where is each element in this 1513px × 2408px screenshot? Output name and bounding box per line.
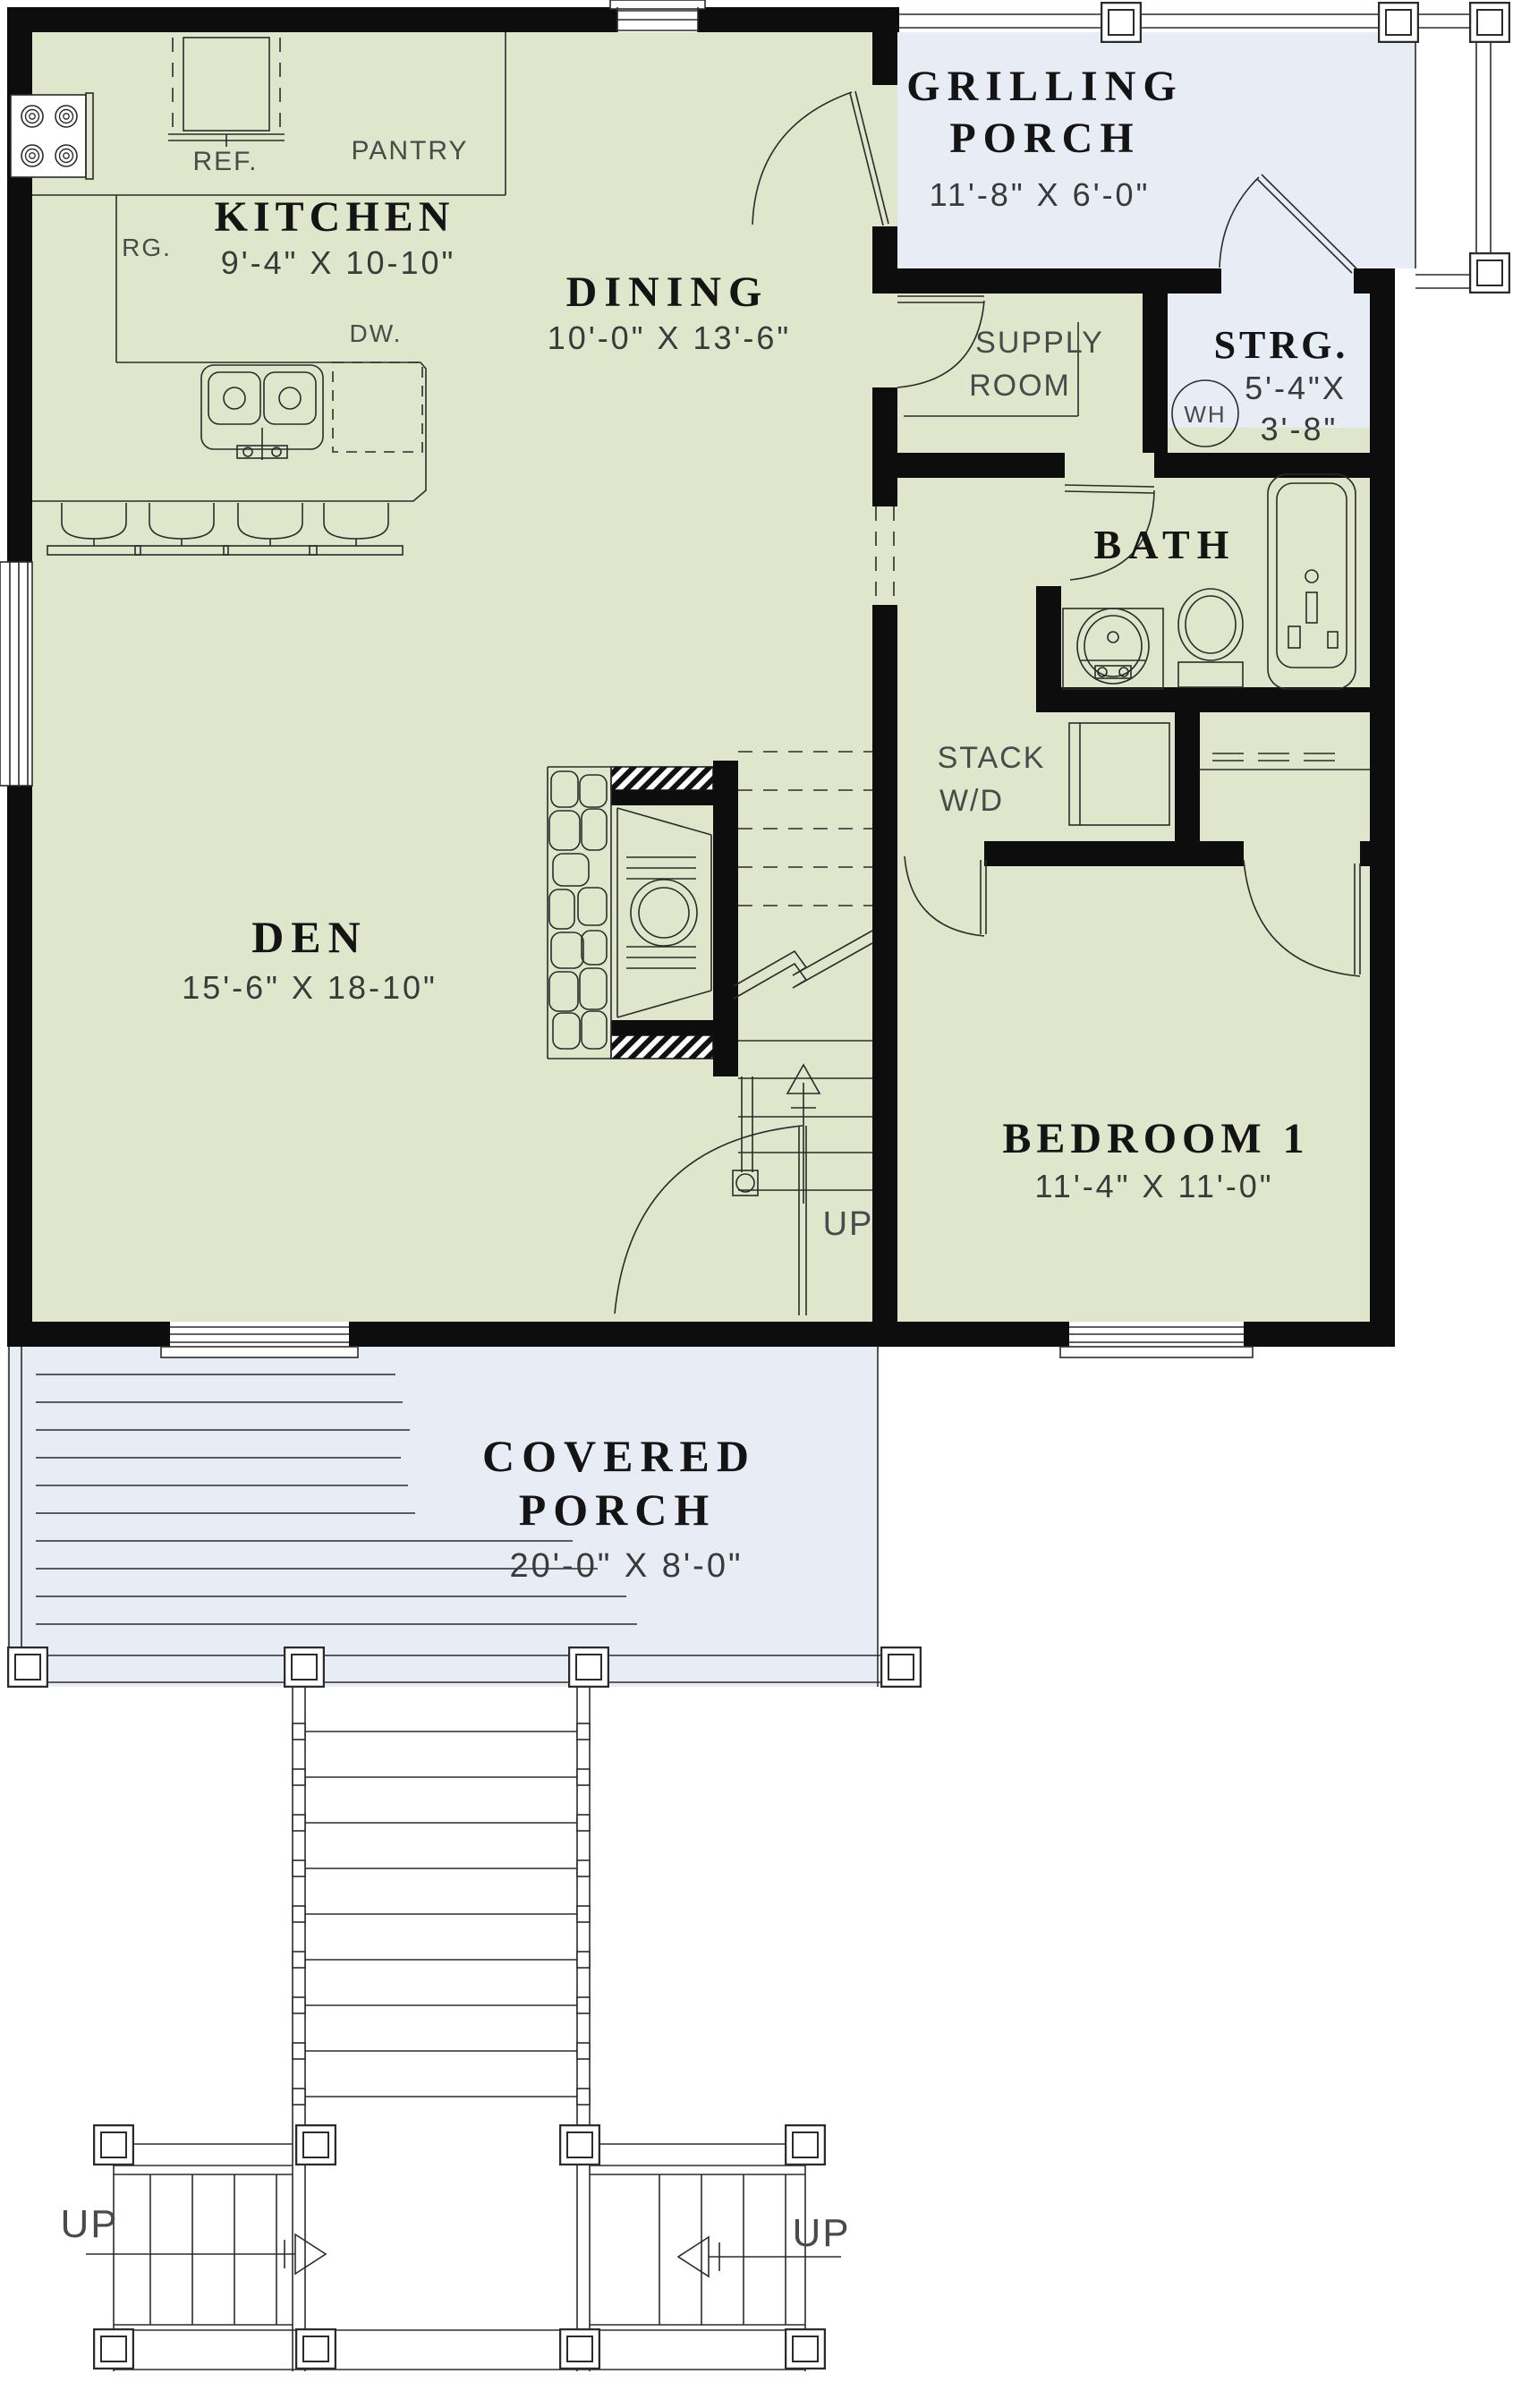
storage-dims-1: 5'-4"X bbox=[1245, 370, 1347, 406]
lower-landing bbox=[86, 2125, 841, 2371]
den-dims: 15'-6" X 18-10" bbox=[182, 969, 438, 1006]
laundry-label-2: W/D bbox=[939, 784, 1004, 818]
storage-label: STRG. bbox=[1214, 323, 1349, 367]
dishwasher-label: DW. bbox=[350, 319, 403, 347]
supply-room-label-2: ROOM bbox=[969, 369, 1071, 403]
grilling-porch-dims: 11'-8" X 6'-0" bbox=[930, 176, 1151, 213]
deck-up-label-left: UP bbox=[60, 2202, 118, 2246]
deck-post bbox=[1379, 3, 1418, 42]
floor-plan: GRILLING PORCH 11'-8" X 6'-0" STRG. 5'-4… bbox=[0, 0, 1513, 2408]
landing-post bbox=[786, 2125, 825, 2165]
deck-post bbox=[1470, 3, 1509, 42]
door-gap bbox=[1221, 268, 1354, 294]
deck-post bbox=[1101, 3, 1141, 42]
pantry-label: PANTRY bbox=[352, 136, 469, 166]
den-label: DEN bbox=[251, 912, 368, 962]
door-gap bbox=[872, 85, 897, 226]
window-den-front bbox=[161, 1322, 358, 1357]
door-gap bbox=[1244, 841, 1360, 866]
porch-post bbox=[8, 1647, 47, 1687]
covered-porch-label-1: COVERED bbox=[482, 1431, 756, 1481]
masonry-hatch bbox=[611, 767, 713, 790]
landing-right-stair bbox=[659, 2174, 786, 2325]
door-gap bbox=[897, 841, 984, 866]
window-top-wall bbox=[610, 0, 705, 32]
porch-post bbox=[569, 1647, 608, 1687]
covered-porch-label-2: PORCH bbox=[519, 1485, 717, 1535]
porch-post bbox=[285, 1647, 324, 1687]
water-heater-label: WH bbox=[1184, 401, 1226, 428]
stair-treads bbox=[293, 1723, 590, 2105]
landing-post bbox=[560, 2125, 599, 2165]
bedroom1-dims: 11'-4" X 11'-0" bbox=[1034, 1168, 1273, 1204]
deck-post bbox=[1470, 253, 1509, 293]
kitchen-label: KITCHEN bbox=[215, 193, 455, 241]
kitchen-dims: 9'-4" X 10-10" bbox=[221, 244, 456, 281]
landing-post bbox=[94, 2125, 133, 2165]
range-label: RG. bbox=[122, 234, 172, 261]
window-left-wall bbox=[0, 562, 32, 786]
porch-post bbox=[881, 1647, 921, 1687]
storage-dims-2: 3'-8" bbox=[1261, 411, 1339, 447]
main-deck-stair bbox=[293, 1688, 590, 2139]
range bbox=[11, 93, 93, 179]
grilling-porch-label-1: GRILLING bbox=[906, 63, 1183, 110]
window-bedroom-front bbox=[1060, 1322, 1253, 1357]
landing-post bbox=[296, 2329, 336, 2369]
laundry-label-1: STACK bbox=[938, 741, 1046, 775]
deck-up-arrow-left bbox=[86, 2234, 326, 2274]
covered-porch-floor bbox=[7, 1347, 878, 1687]
deck-up-label-right: UP bbox=[792, 2211, 850, 2255]
grilling-porch-label-2: PORCH bbox=[949, 115, 1140, 162]
stair-up-label: UP bbox=[823, 1205, 874, 1243]
supply-room-label-1: SUPPLY bbox=[975, 326, 1104, 360]
landing-post bbox=[560, 2329, 599, 2369]
dining-dims: 10'-0" X 13'-6" bbox=[548, 319, 791, 356]
masonry-hatch bbox=[611, 1035, 713, 1059]
door-gap bbox=[1036, 478, 1061, 586]
dining-label: DINING bbox=[566, 268, 769, 316]
floor-plan-drawing: GRILLING PORCH 11'-8" X 6'-0" STRG. 5'-4… bbox=[0, 0, 1513, 2408]
refrigerator-label: REF. bbox=[192, 147, 258, 176]
door-gap bbox=[872, 294, 897, 387]
landing-post bbox=[94, 2329, 133, 2369]
landing-post bbox=[296, 2125, 336, 2165]
landing-left-stair bbox=[150, 2174, 276, 2325]
landing-post bbox=[786, 2329, 825, 2369]
covered-porch-dims: 20'-0" X 8'-0" bbox=[510, 1547, 744, 1585]
bedroom1-label: BEDROOM 1 bbox=[1002, 1115, 1309, 1162]
bath-label: BATH bbox=[1094, 522, 1237, 567]
